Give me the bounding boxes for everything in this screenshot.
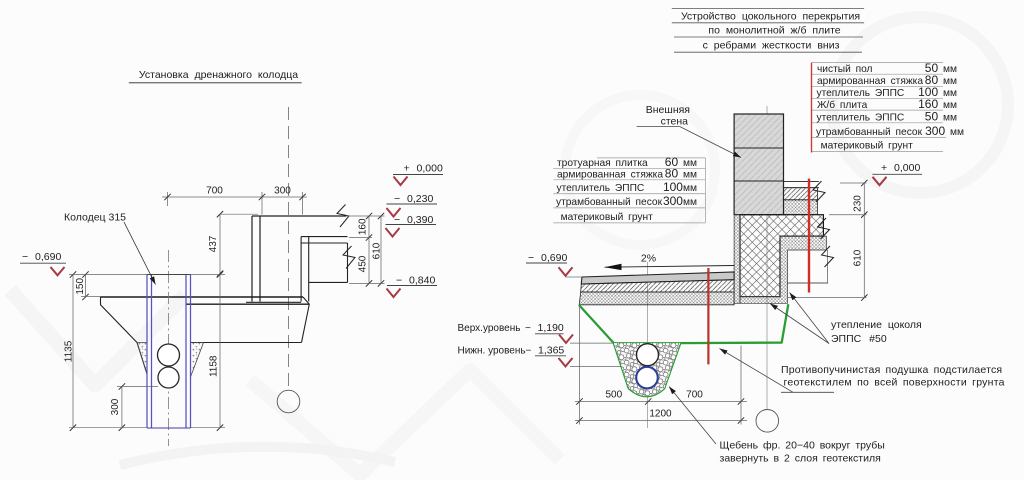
- svg-text:утеплитель ЭППС: утеплитель ЭППС: [817, 88, 905, 99]
- svg-text:1,190: 1,190: [538, 322, 564, 334]
- svg-text:+ 0,000: + 0,000: [881, 162, 920, 174]
- svg-text:− 0,690: − 0,690: [22, 251, 61, 263]
- svg-text:− 0,230: − 0,230: [394, 193, 433, 205]
- svg-text:1158: 1158: [209, 355, 220, 377]
- svg-text:материковый грунт: материковый грунт: [561, 212, 653, 223]
- svg-text:−: −: [526, 345, 532, 356]
- svg-text:Внешняя: Внешняя: [646, 104, 690, 116]
- svg-text:100мм: 100мм: [663, 180, 697, 194]
- svg-text:1135: 1135: [64, 340, 75, 362]
- svg-text:300мм: 300мм: [663, 194, 697, 208]
- svg-text:Устройство цокольного перекрыт: Устройство цокольного перекрытия: [681, 11, 860, 23]
- svg-text:по монолитной ж/б плите: по монолитной ж/б плите: [708, 25, 840, 37]
- svg-text:300: 300: [274, 186, 291, 197]
- svg-text:утеплитель ЭППС: утеплитель ЭППС: [817, 113, 905, 124]
- svg-text:Противопучинистая подушка подс: Противопучинистая подушка подстилается: [781, 364, 1002, 376]
- svg-text:1,365: 1,365: [538, 344, 564, 356]
- svg-text:утепление цоколя: утепление цоколя: [831, 319, 922, 331]
- svg-text:610: 610: [371, 242, 382, 259]
- svg-text:80 мм: 80 мм: [665, 166, 697, 180]
- svg-text:стена: стена: [661, 116, 689, 128]
- svg-text:Щебень фр. 20−40 вокруг трубы: Щебень фр. 20−40 вокруг трубы: [720, 440, 885, 452]
- svg-text:геотекстилем по всей поверхнос: геотекстилем по всей поверхности грунта: [784, 377, 1005, 389]
- svg-text:230: 230: [853, 195, 864, 212]
- svg-text:Колодец 315: Колодец 315: [64, 212, 126, 224]
- svg-text:утеплитель ЭППС: утеплитель ЭППС: [557, 183, 645, 194]
- svg-text:2%: 2%: [641, 253, 656, 265]
- svg-text:− 0,690: − 0,690: [528, 252, 567, 264]
- svg-text:Ж/б плита: Ж/б плита: [817, 99, 868, 111]
- svg-text:300: 300: [110, 398, 121, 415]
- svg-text:завернуть в 2 слоя геотекстиля: завернуть в 2 слоя геотекстиля: [720, 453, 881, 465]
- svg-text:−: −: [525, 323, 531, 334]
- svg-text:50 мм: 50 мм: [925, 110, 957, 124]
- svg-text:160: 160: [358, 218, 369, 235]
- svg-text:чистый пол: чистый пол: [817, 64, 873, 75]
- svg-text:утрамбованный песок: утрамбованный песок: [556, 196, 663, 208]
- svg-text:− 0,840: − 0,840: [396, 275, 435, 287]
- svg-text:450: 450: [358, 255, 369, 272]
- svg-text:610: 610: [853, 249, 864, 266]
- svg-text:700: 700: [206, 186, 223, 197]
- svg-text:700: 700: [686, 390, 703, 401]
- svg-text:437: 437: [208, 235, 219, 252]
- svg-text:армированная стяжка: армированная стяжка: [817, 76, 923, 87]
- svg-text:1200: 1200: [649, 409, 672, 420]
- svg-text:150: 150: [75, 278, 86, 295]
- svg-text:500: 500: [605, 390, 622, 401]
- svg-text:+ 0,000: + 0,000: [404, 163, 443, 175]
- svg-text:армированная стяжка: армированная стяжка: [557, 169, 663, 180]
- svg-text:Нижн. уровень: Нижн. уровень: [458, 345, 526, 356]
- svg-text:материковый грунт: материковый грунт: [821, 141, 913, 152]
- svg-text:утрамбованный песок: утрамбованный песок: [816, 126, 923, 138]
- svg-text:Установка дренажного колодца: Установка дренажного колодца: [139, 69, 298, 81]
- svg-text:с ребрами жесткости вниз: с ребрами жесткости вниз: [703, 39, 840, 51]
- svg-text:тротуарная плитка: тротуарная плитка: [557, 158, 648, 169]
- svg-text:ЭППС #50: ЭППС #50: [831, 333, 887, 345]
- svg-text:300 мм: 300 мм: [925, 124, 964, 138]
- svg-text:Верх.уровень: Верх.уровень: [458, 323, 521, 334]
